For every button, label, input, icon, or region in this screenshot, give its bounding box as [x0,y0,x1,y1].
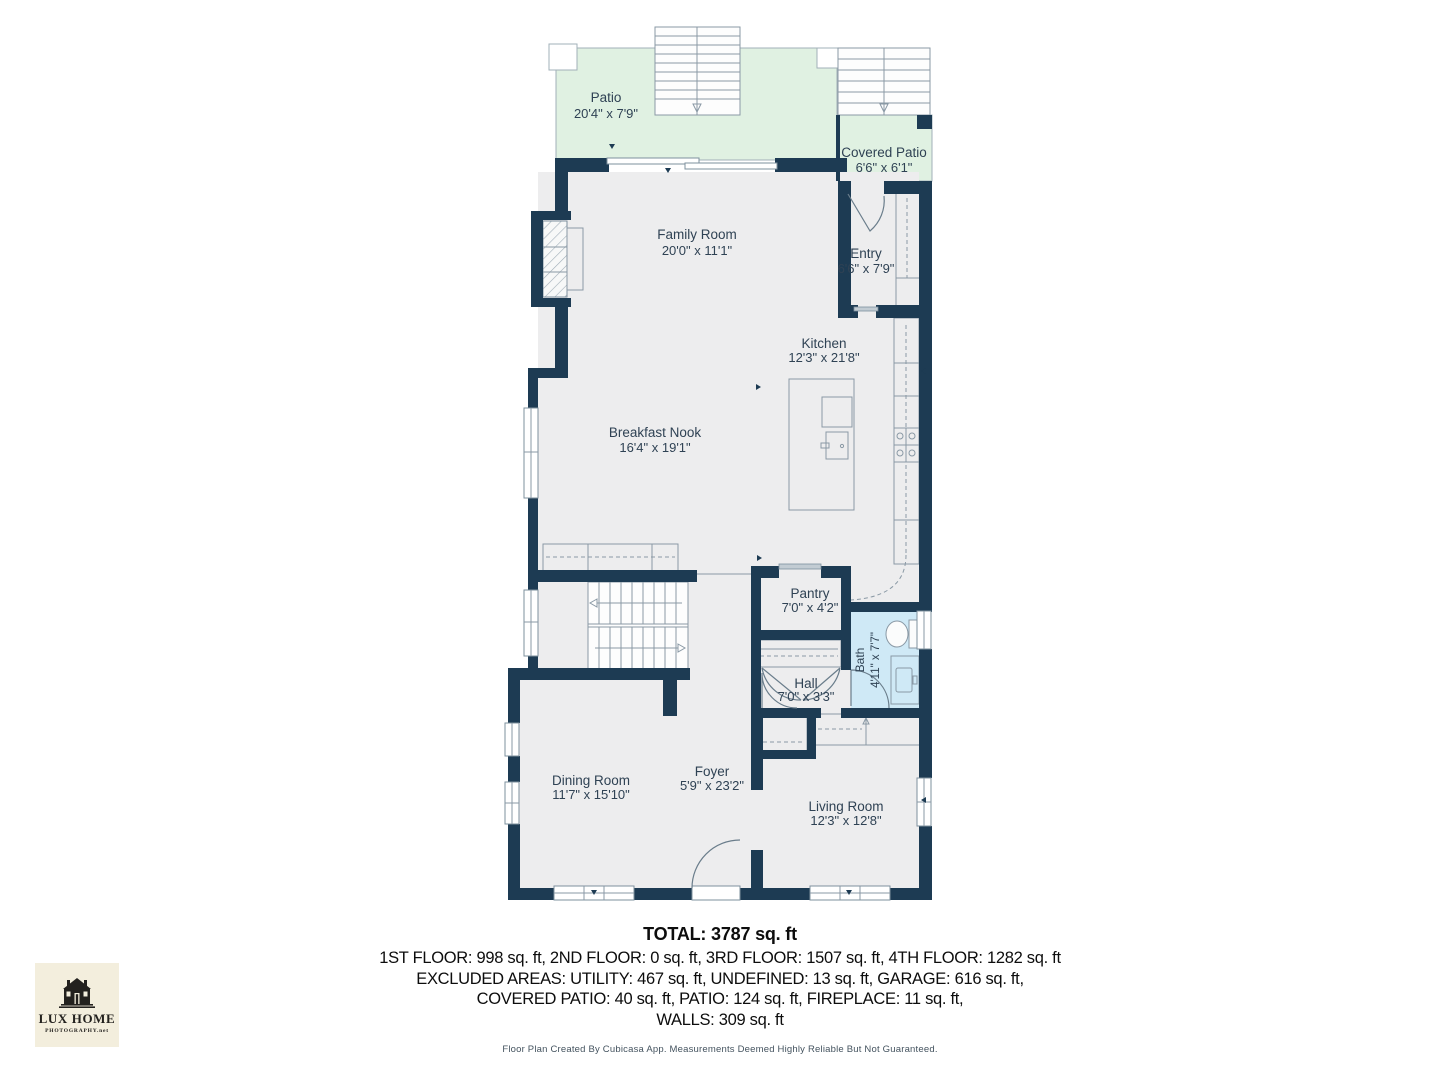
room-label-breakfast-nook: Breakfast Nook 16'4" x 19'1" [609,425,702,455]
toilet [886,620,918,648]
svg-text:Pantry: Pantry [790,586,829,601]
svg-text:4'11" x 7'7": 4'11" x 7'7" [870,632,882,688]
lux-home-logo: LUX HOME PHOTOGRAPHY.net [35,963,119,1047]
svg-text:Covered Patio: Covered Patio [841,145,927,160]
patio-stairs [655,27,740,115]
svg-text:20'0" x 11'1": 20'0" x 11'1" [662,243,733,258]
svg-text:Family Room: Family Room [657,227,737,242]
svg-text:6'6" x 7'9": 6'6" x 7'9" [838,261,895,276]
svg-text:Living Room: Living Room [808,799,883,814]
svg-text:Kitchen: Kitchen [801,336,846,351]
front-door-slab [692,886,740,900]
excluded-areas-line: EXCLUDED AREAS: UTILITY: 467 sq. ft, UND… [0,969,1440,990]
svg-text:7'0" x 4'2": 7'0" x 4'2" [782,600,839,615]
room-label-living-room: Living Room 12'3" x 12'8" [808,799,883,828]
walls-area-line: WALLS: 309 sq. ft [0,1010,1440,1031]
room-label-family-room: Family Room 20'0" x 11'1" [657,227,737,258]
floor-plan-canvas: Patio 20'4" x 7'9" Covered Patio 6'6" x … [0,0,1440,1080]
disclaimer-text: Floor Plan Created By Cubicasa App. Meas… [0,1044,1440,1055]
kitchen-entry-door [854,307,878,311]
svg-text:Entry: Entry [850,246,882,261]
floor-areas-line: 1ST FLOOR: 998 sq. ft, 2ND FLOOR: 0 sq. … [0,948,1440,969]
pantry-door [779,564,821,569]
house-icon [57,977,97,1009]
svg-text:6'6" x 6'1": 6'6" x 6'1" [856,160,913,175]
svg-text:Foyer: Foyer [695,764,730,779]
svg-text:Bath: Bath [853,648,867,673]
total-area: TOTAL: 3787 sq. ft [0,924,1440,945]
svg-text:12'3" x 21'8": 12'3" x 21'8" [788,350,860,365]
logo-title: LUX HOME [39,1011,116,1027]
svg-text:16'4" x 19'1": 16'4" x 19'1" [619,440,691,455]
svg-text:Patio: Patio [591,90,622,105]
svg-text:Breakfast Nook: Breakfast Nook [609,425,702,440]
room-label-dining-room: Dining Room 11'7" x 15'10" [552,773,630,802]
svg-text:20'4" x 7'9": 20'4" x 7'9" [574,106,638,121]
area-summary: TOTAL: 3787 sq. ft 1ST FLOOR: 998 sq. ft… [0,924,1440,1030]
logo-subtitle: PHOTOGRAPHY.net [45,1028,109,1034]
interior-stairs [588,582,688,670]
svg-text:5'9" x 23'2": 5'9" x 23'2" [680,778,744,793]
svg-text:11'7" x 15'10": 11'7" x 15'10" [552,787,630,802]
svg-text:Dining Room: Dining Room [552,773,630,788]
svg-text:12'3" x 12'8": 12'3" x 12'8" [810,813,882,828]
svg-text:7'0" x 3'3": 7'0" x 3'3" [778,689,835,704]
covered-patio-stairs [838,48,930,115]
floor-plan-page: Patio 20'4" x 7'9" Covered Patio 6'6" x … [0,0,1440,1080]
patio-areas-line: COVERED PATIO: 40 sq. ft, PATIO: 124 sq.… [0,989,1440,1010]
